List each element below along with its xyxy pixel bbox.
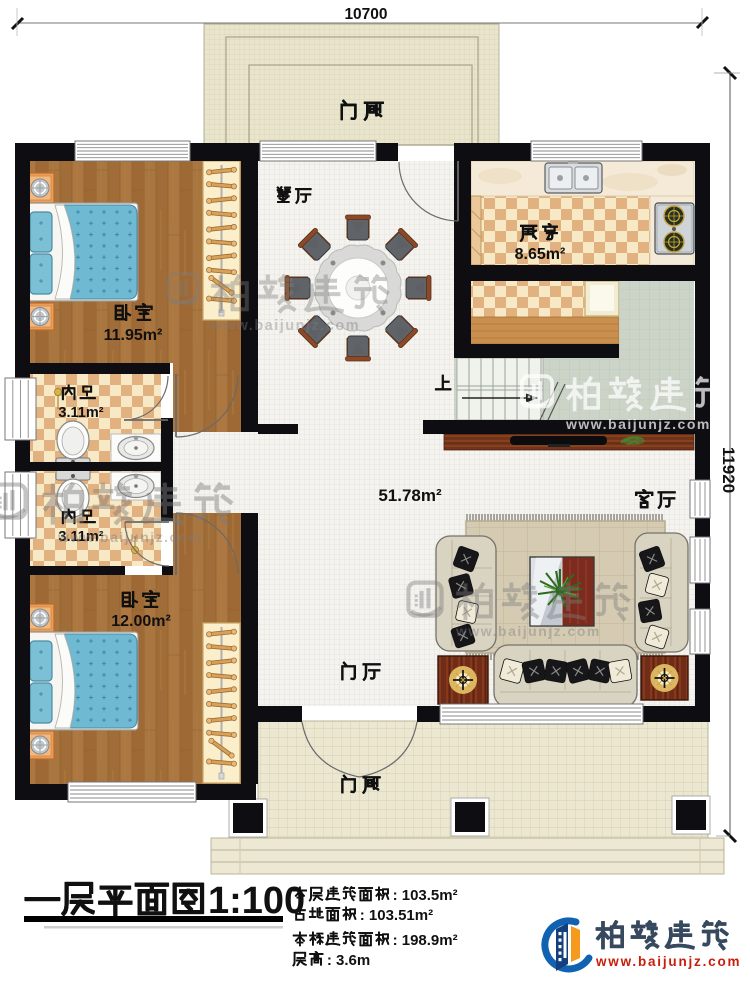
svg-text:: 103.5m²: : 103.5m² [393, 887, 458, 904]
svg-text:: 198.9m²: : 198.9m² [393, 932, 458, 949]
svg-text:www.baijunjz.com: www.baijunjz.com [565, 416, 711, 432]
svg-text:www.baijunjz.com: www.baijunjz.com [210, 318, 360, 334]
svg-text:11920: 11920 [719, 447, 738, 493]
svg-text:8.65m²: 8.65m² [515, 246, 566, 263]
svg-text:12.00m²: 12.00m² [111, 613, 171, 630]
svg-text:10700: 10700 [344, 6, 387, 23]
svg-text:1:100: 1:100 [208, 880, 305, 922]
svg-text:: 3.6m: : 3.6m [327, 952, 370, 969]
svg-text:: 103.51m²: : 103.51m² [360, 907, 433, 924]
svg-text:www.baijunjz.com: www.baijunjz.com [455, 623, 601, 639]
svg-text:51.78m²: 51.78m² [378, 486, 442, 505]
svg-text:www.baijunjz.com: www.baijunjz.com [595, 954, 741, 969]
svg-text:11.95m²: 11.95m² [104, 327, 163, 344]
svg-text:3.11m²: 3.11m² [58, 405, 103, 421]
svg-text:www.baijunjz.com: www.baijunjz.com [57, 529, 203, 545]
